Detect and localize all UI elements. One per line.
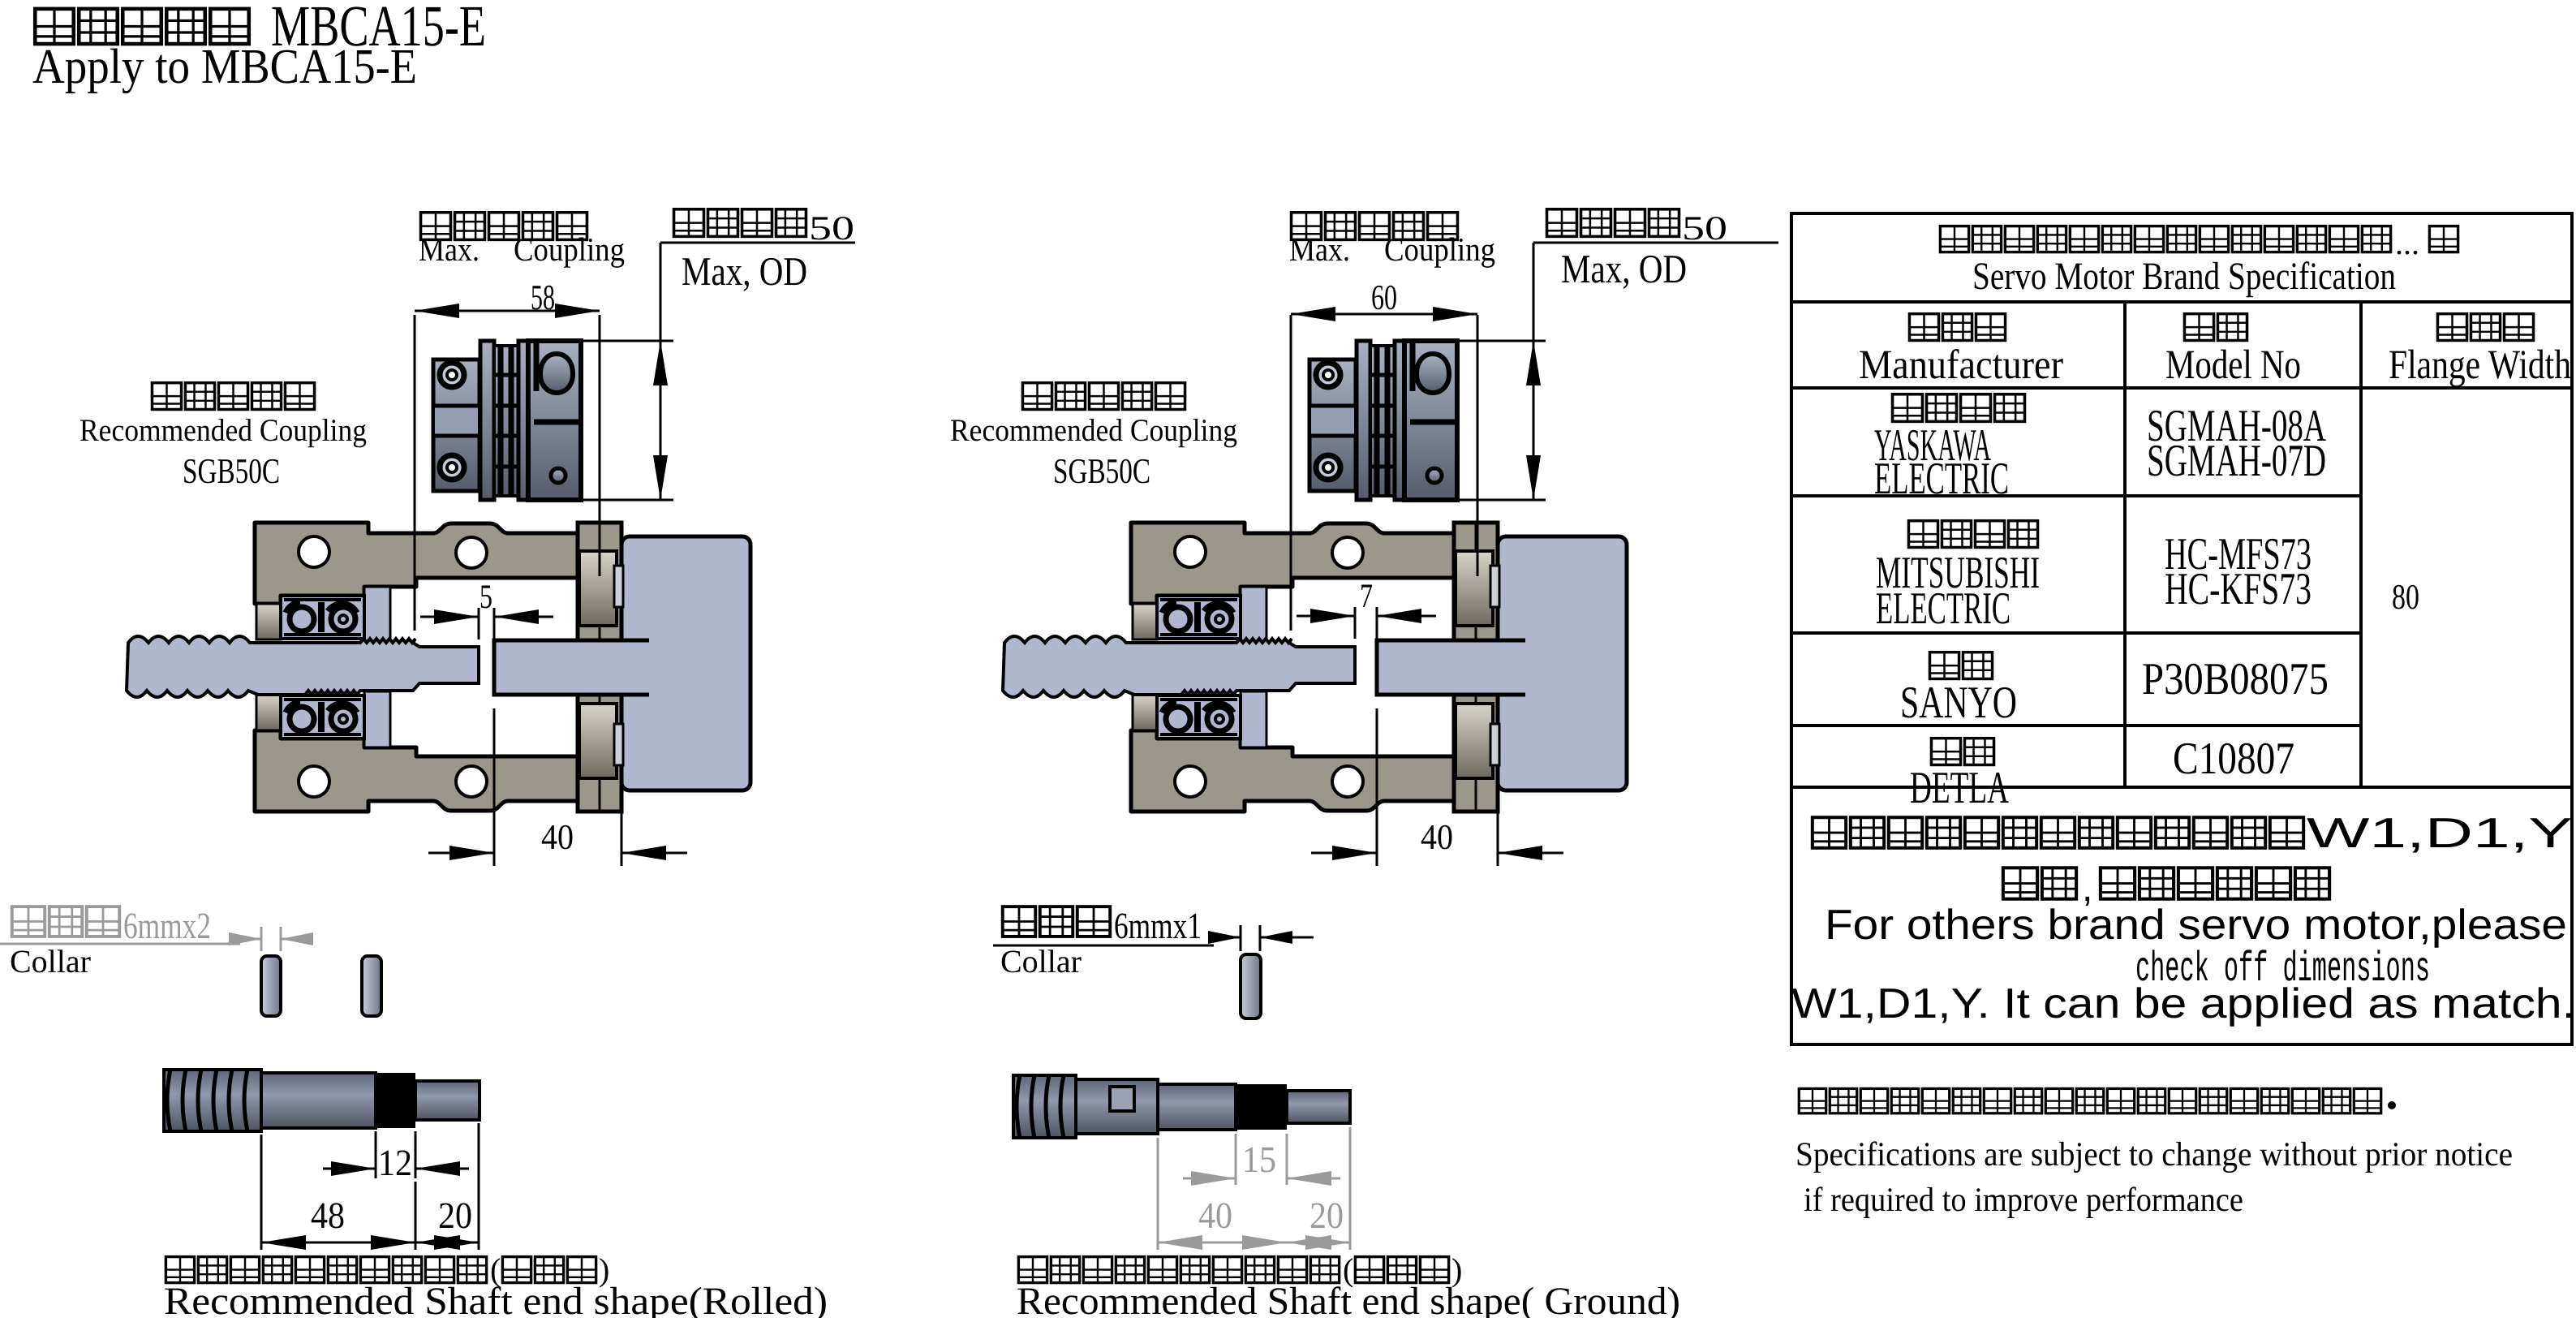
- svg-text:Apply to: Apply to: [32, 40, 190, 94]
- svg-text:C10807: C10807: [2173, 734, 2294, 784]
- svg-text:15: 15: [1242, 1139, 1276, 1180]
- svg-text:ELECTRIC: ELECTRIC: [1876, 583, 2010, 634]
- svg-text:Recommended Coupling: Recommended Coupling: [80, 413, 367, 448]
- svg-text:P30B08075: P30B08075: [2142, 654, 2329, 704]
- svg-text:40: 40: [1198, 1195, 1232, 1236]
- svg-text:W1,D1,Y: W1,D1,Y: [2307, 810, 2573, 857]
- svg-text:Recommended Shaft end shape(Ro: Recommended Shaft end shape(Rolled): [164, 1280, 828, 1318]
- svg-text:80: 80: [2392, 577, 2419, 617]
- svg-text:7: 7: [1360, 578, 1373, 615]
- svg-text:For others brand servo motor,p: For others brand servo motor,please: [1825, 902, 2567, 949]
- svg-text:SGMAH-07D: SGMAH-07D: [2147, 436, 2326, 486]
- svg-text:Max.: Max.: [1289, 230, 1350, 268]
- svg-text:48: 48: [311, 1195, 345, 1236]
- svg-text:6mmx2: 6mmx2: [123, 905, 211, 946]
- svg-text:W1,D1,Y. It can be applied as: W1,D1,Y. It can be applied as match.: [1791, 980, 2575, 1027]
- svg-text:6mmx1: 6mmx1: [1114, 905, 1202, 946]
- svg-text:Coupling: Coupling: [514, 230, 625, 268]
- svg-text:12: 12: [378, 1142, 412, 1183]
- svg-text:SANYO: SANYO: [1900, 678, 2017, 728]
- svg-text:Collar: Collar: [1000, 943, 1082, 980]
- svg-text:Servo Motor Brand Specificatio: Servo Motor Brand Specification: [1972, 255, 2396, 298]
- svg-text:Coupling: Coupling: [1384, 230, 1495, 268]
- svg-text:5: 5: [480, 579, 492, 616]
- svg-text:20: 20: [1310, 1195, 1344, 1236]
- svg-text:HC-KFS73: HC-KFS73: [2165, 564, 2312, 614]
- svg-text:40: 40: [541, 817, 574, 857]
- svg-text:SGB50C: SGB50C: [183, 451, 280, 491]
- svg-text:Max, OD: Max, OD: [682, 248, 807, 294]
- svg-text:Recommended Coupling: Recommended Coupling: [950, 413, 1237, 448]
- svg-text:Max.: Max.: [419, 230, 480, 268]
- svg-text:Manufacturer: Manufacturer: [1859, 342, 2063, 388]
- svg-text:Specifications are subject to: Specifications are subject to change wit…: [1795, 1136, 2513, 1173]
- svg-text:MBCA15-E: MBCA15-E: [201, 40, 417, 94]
- svg-text:60: 60: [1371, 278, 1397, 317]
- svg-text:...: ...: [2395, 225, 2419, 261]
- svg-text:ELECTRIC: ELECTRIC: [1874, 454, 2009, 504]
- svg-text:Flange Width: Flange Width: [2389, 342, 2571, 388]
- svg-text:SGB50C: SGB50C: [1053, 451, 1150, 491]
- svg-text:Collar: Collar: [10, 943, 91, 980]
- svg-text:if required to improve perform: if required to improve performance: [1804, 1182, 2243, 1219]
- svg-text:Max, OD: Max, OD: [1561, 246, 1687, 291]
- svg-text:DETLA: DETLA: [1910, 763, 2009, 813]
- svg-text:40: 40: [1421, 817, 1453, 857]
- svg-text:20: 20: [438, 1195, 472, 1236]
- svg-text:Recommended Shaft end shape( G: Recommended Shaft end shape( Ground): [1017, 1280, 1680, 1318]
- svg-text:Model No: Model No: [2165, 342, 2301, 388]
